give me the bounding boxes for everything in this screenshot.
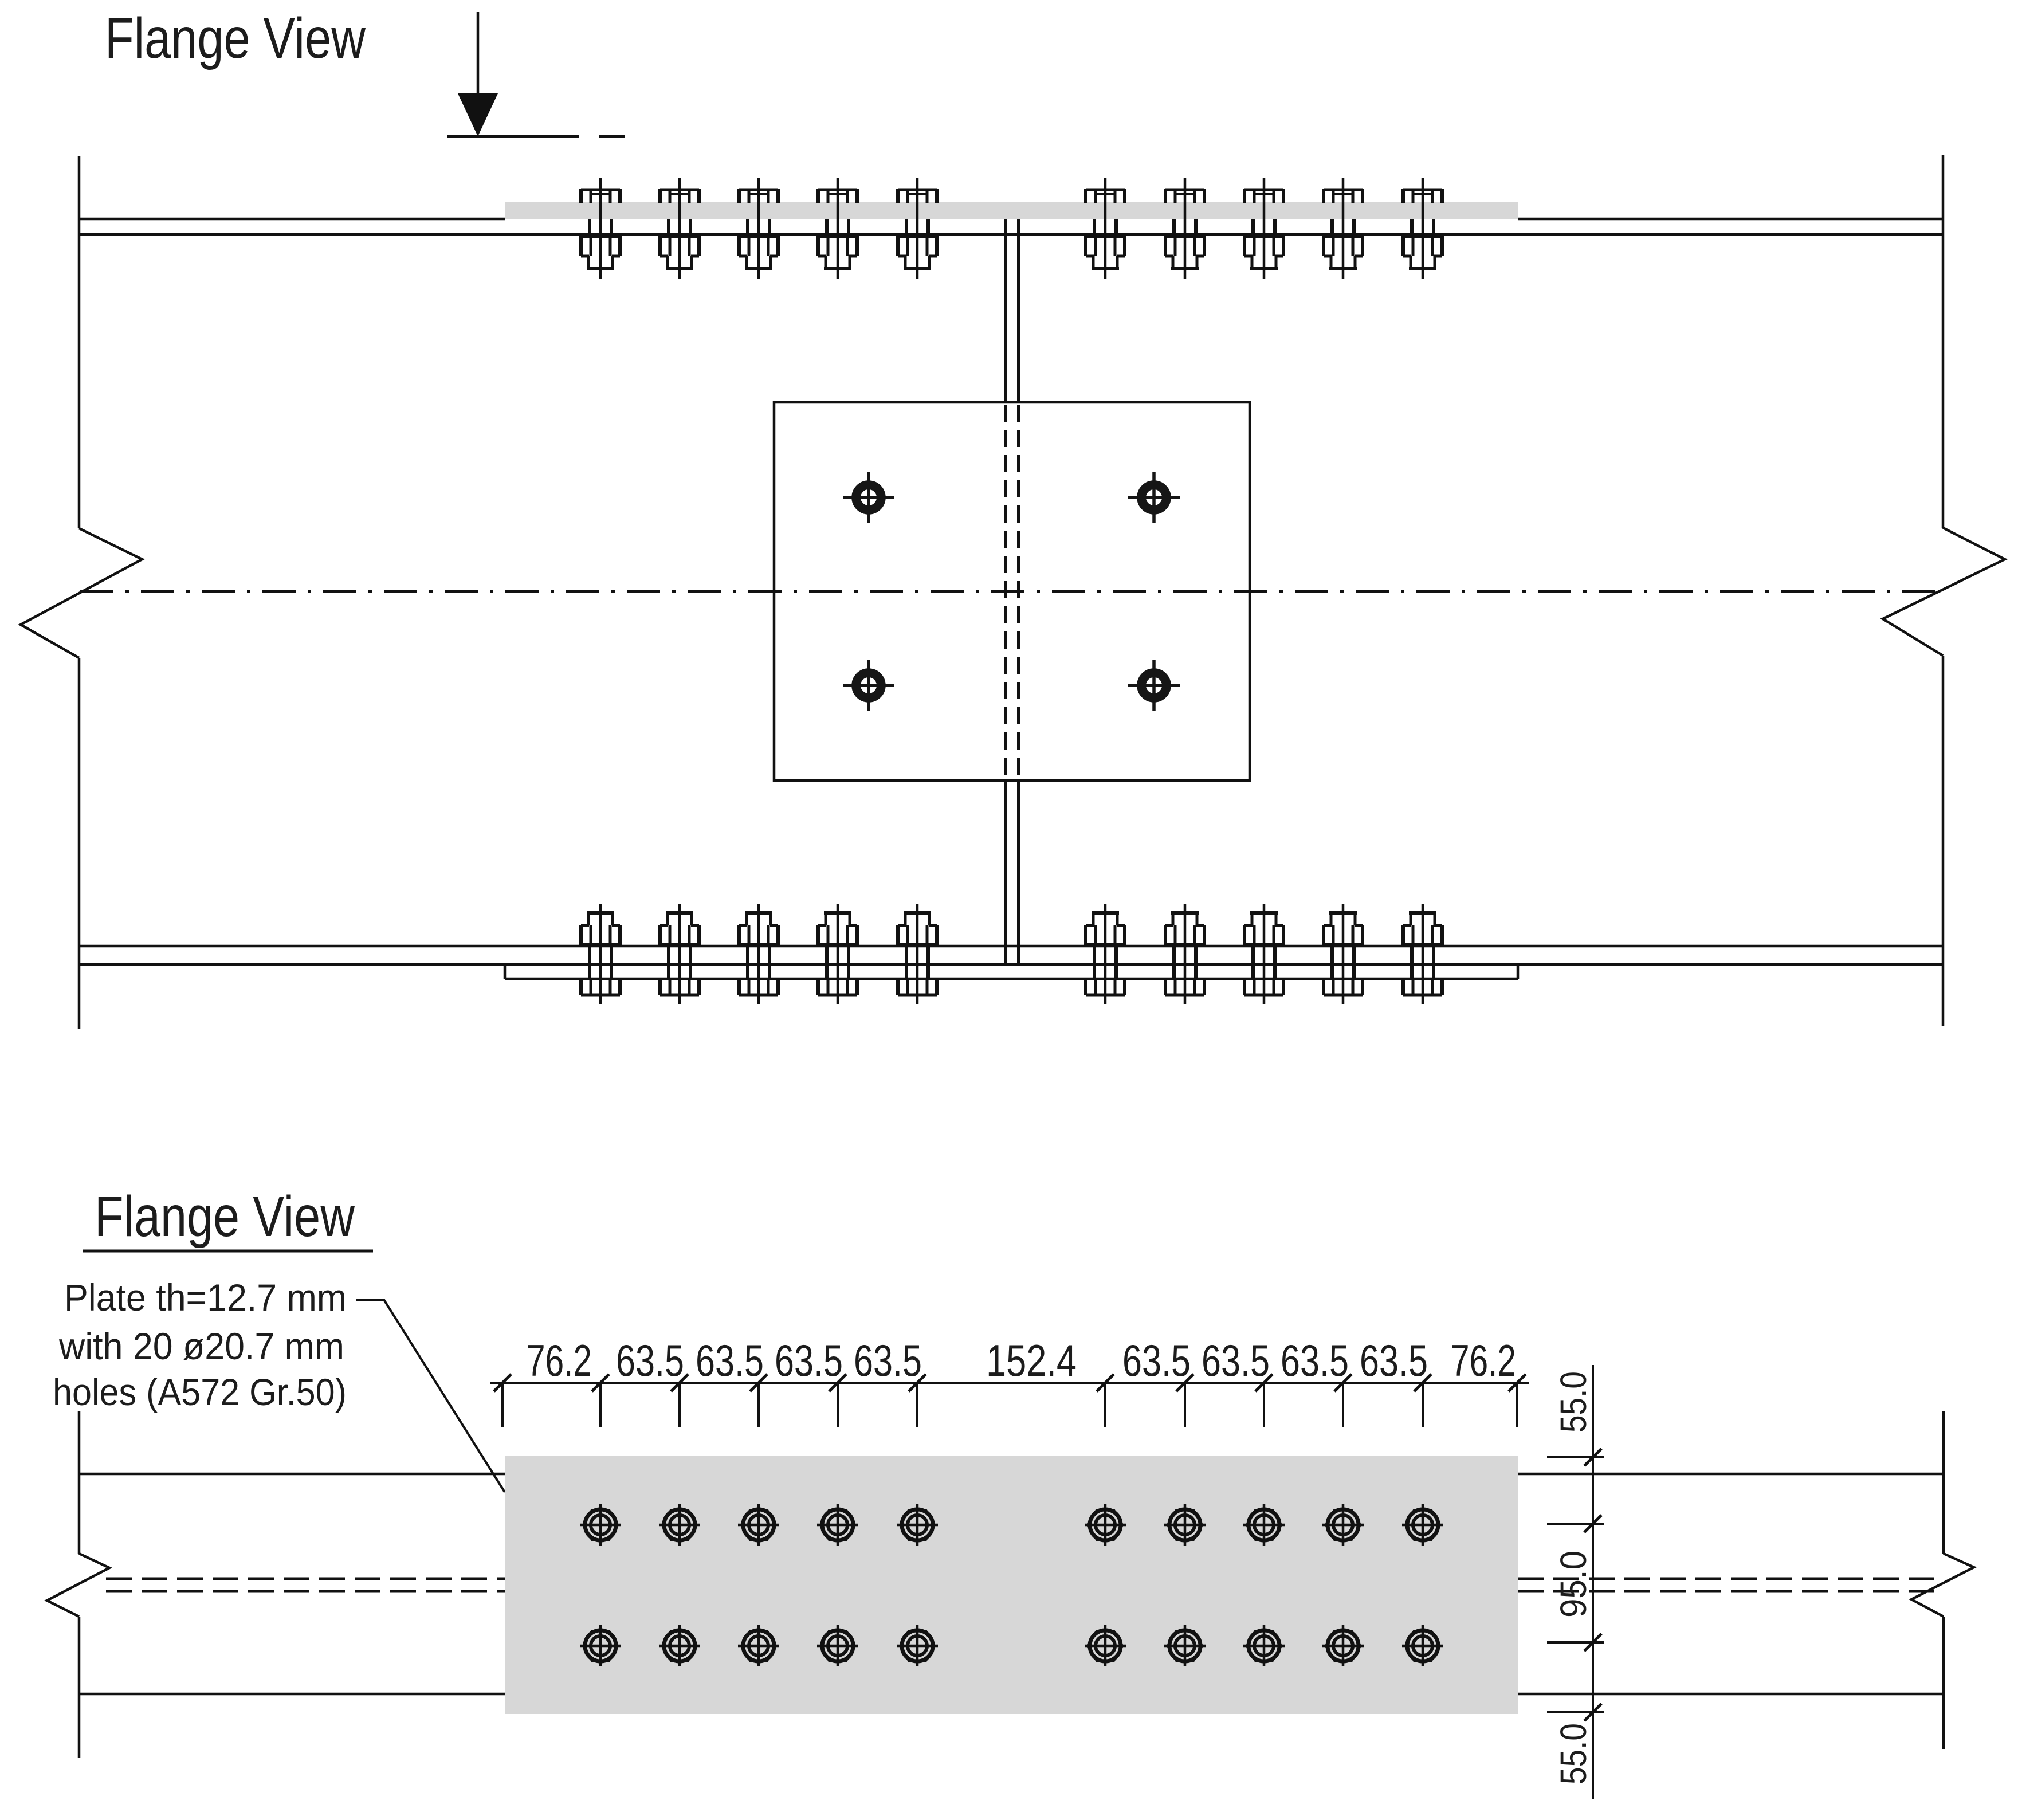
- svg-text:Flange View: Flange View: [95, 1184, 355, 1249]
- svg-text:63.5: 63.5: [775, 1335, 843, 1386]
- svg-text:152.4: 152.4: [986, 1335, 1077, 1386]
- svg-text:95.0: 95.0: [1553, 1551, 1594, 1618]
- svg-text:76.2: 76.2: [527, 1335, 592, 1386]
- svg-text:55.0: 55.0: [1553, 1723, 1594, 1784]
- svg-text:63.5: 63.5: [1360, 1335, 1428, 1386]
- svg-text:63.5: 63.5: [1122, 1335, 1191, 1386]
- svg-text:Flange View: Flange View: [105, 6, 366, 70]
- svg-text:63.5: 63.5: [854, 1335, 922, 1386]
- svg-text:63.5: 63.5: [616, 1335, 684, 1386]
- svg-text:76.2: 76.2: [1451, 1335, 1516, 1386]
- svg-text:Plate th=12.7 mm: Plate th=12.7 mm: [64, 1276, 347, 1319]
- svg-text:holes (A572 Gr.50): holes (A572 Gr.50): [53, 1371, 347, 1413]
- svg-text:63.5: 63.5: [696, 1335, 764, 1386]
- svg-text:63.5: 63.5: [1202, 1335, 1270, 1386]
- svg-text:63.5: 63.5: [1281, 1335, 1349, 1386]
- svg-text:55.0: 55.0: [1553, 1371, 1594, 1433]
- svg-text:with 20 ø20.7 mm: with 20 ø20.7 mm: [58, 1325, 344, 1367]
